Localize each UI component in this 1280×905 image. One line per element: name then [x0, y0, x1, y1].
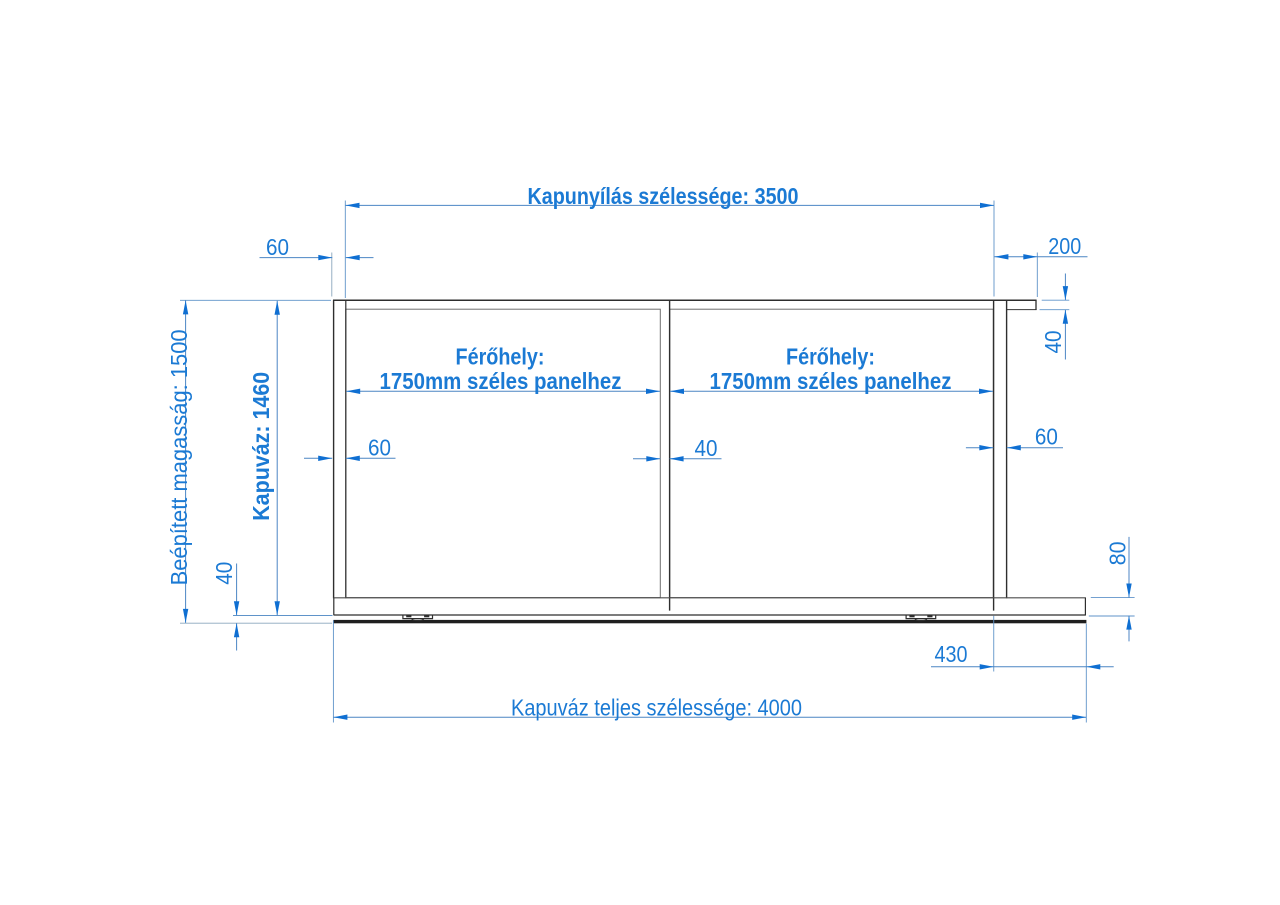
svg-text:200: 200 [1048, 233, 1081, 259]
svg-text:Kapuváz: 1460: Kapuváz: 1460 [248, 372, 274, 521]
svg-text:430: 430 [935, 641, 968, 667]
svg-text:60: 60 [266, 234, 289, 260]
svg-text:60: 60 [368, 434, 391, 460]
svg-text:60: 60 [1035, 424, 1058, 450]
svg-text:1750mm széles panelhez: 1750mm széles panelhez [380, 368, 622, 394]
svg-text:40: 40 [695, 435, 718, 461]
svg-text:Férőhely:: Férőhely: [786, 343, 875, 369]
svg-text:40: 40 [1040, 331, 1066, 354]
svg-text:Kapuváz teljes szélessége: 400: Kapuváz teljes szélessége: 4000 [511, 695, 802, 721]
svg-text:Kapunyílás szélessége: 3500: Kapunyílás szélessége: 3500 [528, 183, 799, 209]
svg-text:80: 80 [1105, 541, 1131, 565]
svg-text:Beépített magasság: 1500: Beépített magasság: 1500 [166, 329, 192, 585]
svg-text:40: 40 [211, 562, 237, 585]
svg-text:1750mm széles panelhez: 1750mm széles panelhez [710, 368, 952, 394]
svg-text:Férőhely:: Férőhely: [456, 343, 545, 369]
